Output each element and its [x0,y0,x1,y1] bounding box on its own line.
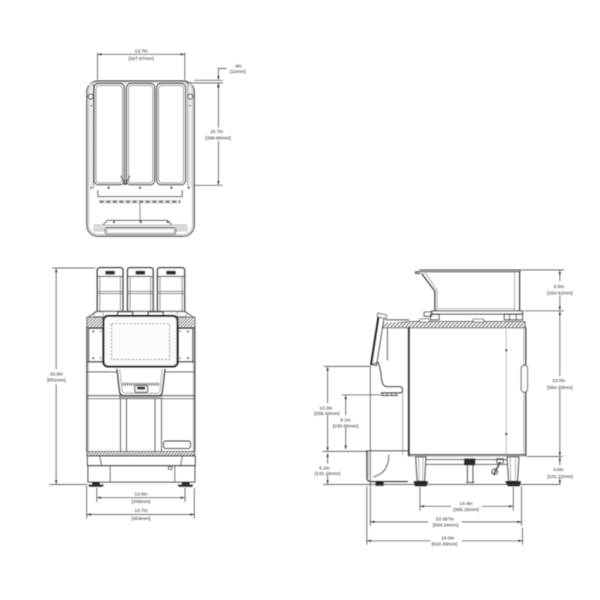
svg-text:[11mm]: [11mm] [230,69,246,75]
svg-text:14.7in: 14.7in [134,508,147,514]
svg-text:.4in: .4in [234,63,242,69]
svg-text:33.5in: 33.5in [50,372,63,378]
svg-text:13.7in: 13.7in [135,48,148,54]
svg-text:4.0in: 4.0in [553,467,564,473]
svg-text:[851mm]: [851mm] [47,378,66,384]
svg-text:[338.40mm]: [338.40mm] [314,411,339,417]
svg-text:9.1in: 9.1in [340,417,351,423]
svg-text:13.6in: 13.6in [134,491,147,497]
svg-text:5.2in: 5.2in [319,466,330,472]
svg-text:24.0in: 24.0in [441,536,454,542]
svg-text:[230.65mm]: [230.65mm] [333,423,358,429]
svg-text:[404mm]: [404mm] [132,516,151,522]
svg-text:23.387in: 23.387in [436,517,455,523]
svg-text:[101.22mm]: [101.22mm] [547,474,572,480]
svg-text:15.7in: 15.7in [210,129,223,135]
svg-text:[610.36mm]: [610.36mm] [432,542,457,548]
svg-text:6.5in: 6.5in [554,284,565,290]
svg-text:[594.04mm]: [594.04mm] [433,523,458,529]
svg-text:13.3in: 13.3in [319,405,332,411]
svg-text:23.0in: 23.0in [552,378,565,384]
svg-text:[399.86mm]: [399.86mm] [205,135,230,141]
svg-text:14.4in: 14.4in [459,501,472,507]
svg-text:[347.87mm]: [347.87mm] [129,56,154,62]
svg-text:[346mm]: [346mm] [132,499,151,505]
svg-text:[131.19mm]: [131.19mm] [315,471,340,477]
svg-text:[164.81mm]: [164.81mm] [547,291,572,297]
svg-text:[584.33mm]: [584.33mm] [547,385,572,391]
svg-text:[365.15mm]: [365.15mm] [453,507,478,513]
